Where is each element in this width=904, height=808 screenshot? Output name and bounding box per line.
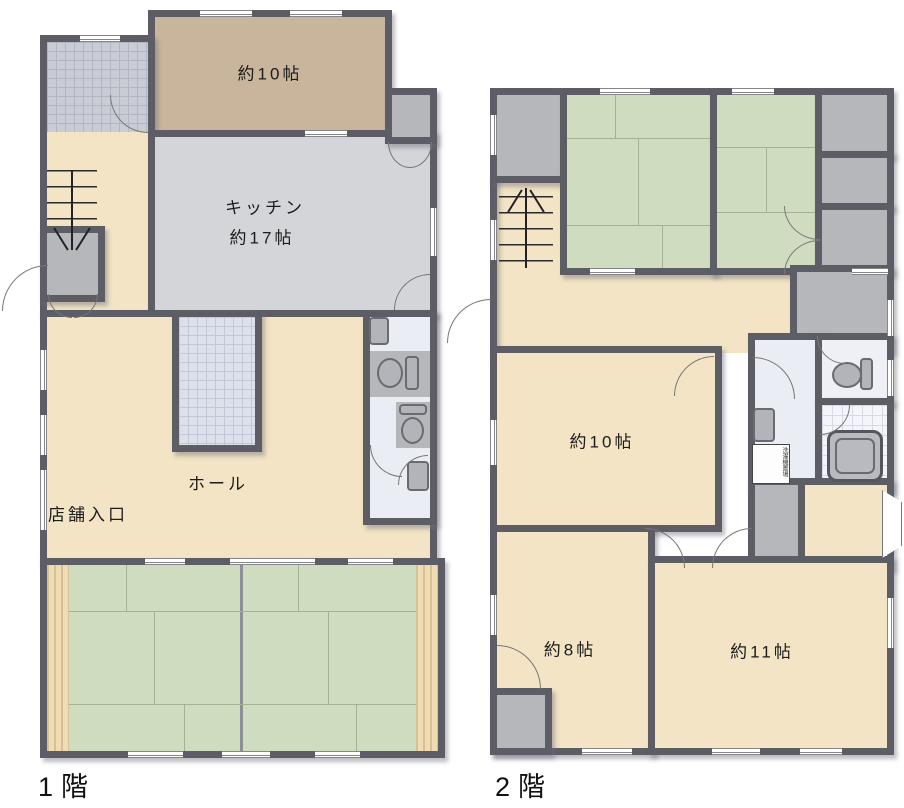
window xyxy=(490,220,497,260)
window xyxy=(490,115,497,155)
room-10jo-2f-label: 約10帖 xyxy=(570,428,635,453)
washbasin-icon xyxy=(753,408,775,442)
door-arc xyxy=(645,528,685,568)
window xyxy=(490,595,497,635)
window xyxy=(600,88,650,95)
closet-right-1 xyxy=(815,88,894,158)
stairs-center-line xyxy=(525,188,527,268)
window xyxy=(800,748,842,755)
bay-window xyxy=(882,490,902,558)
tatami-line xyxy=(567,225,710,226)
wall-segment xyxy=(490,176,497,360)
floor2-label: 2階 xyxy=(495,765,553,804)
window xyxy=(712,748,760,755)
sliding-door xyxy=(590,268,635,275)
closet-right-2 xyxy=(815,151,894,210)
entrance-door-arc xyxy=(447,299,491,343)
tatami-line xyxy=(638,138,639,225)
window xyxy=(887,300,894,336)
wall-segment xyxy=(490,176,567,183)
tatami-line xyxy=(615,95,616,138)
window xyxy=(490,420,497,465)
bathtub-icon xyxy=(827,430,883,482)
window xyxy=(887,598,894,648)
tatami-line xyxy=(766,147,767,212)
room-11jo-label: 約11帖 xyxy=(730,638,794,663)
toilet-bowl-icon xyxy=(832,362,862,388)
storage-top-left-2f xyxy=(490,88,567,183)
room-8jo-label: 約8帖 xyxy=(544,636,596,661)
window xyxy=(582,748,632,755)
door-arc xyxy=(712,528,752,568)
toilet-tank-icon xyxy=(860,358,873,390)
floorplan-2f: 洗濯機置場 約10帖 約8帖 約11帖 2階 xyxy=(0,0,904,808)
laundry-space-box: 洗濯機置場 xyxy=(752,444,790,484)
window xyxy=(732,88,774,95)
sliding-door xyxy=(852,268,888,275)
window xyxy=(887,360,894,396)
closet-8jo xyxy=(490,688,552,755)
tatami-line xyxy=(662,225,663,268)
